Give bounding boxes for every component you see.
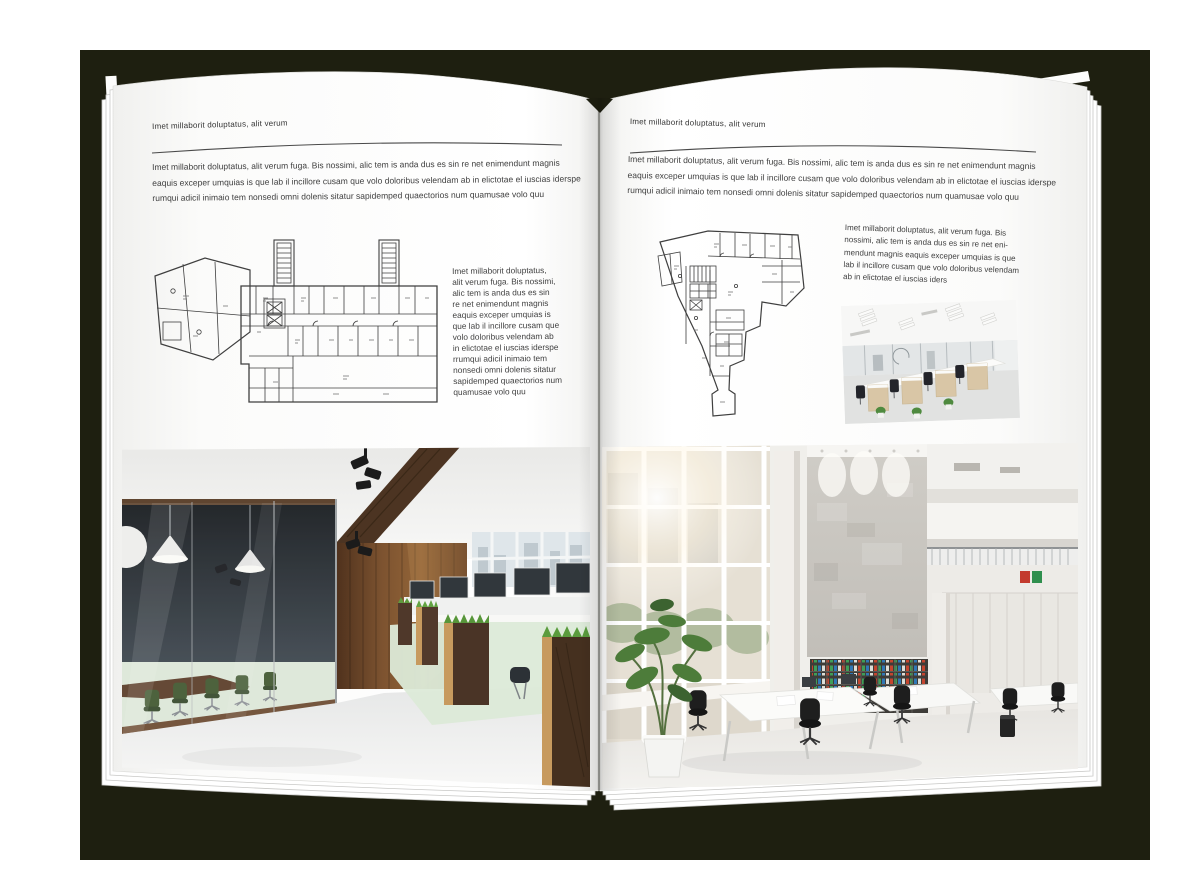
left-intro: Imet millaborit doluptatus, alit verum f… <box>152 156 581 207</box>
photo-open-space-small <box>841 300 1020 424</box>
photo-loft-office <box>122 447 590 787</box>
side-line: sapidemped quaectorios num <box>453 375 562 387</box>
right-intro: Imet millaborit doluptatus, alit verum f… <box>627 152 1056 206</box>
left-side-column: Imet millaborit doluptatus, alit verum f… <box>452 265 562 398</box>
right-side-text: Imet millaborit doluptatus, alit verum f… <box>843 222 1021 290</box>
left-header-rule <box>150 134 564 158</box>
side-line: quamusae volo quu <box>453 386 562 398</box>
floor-plan-right <box>650 226 810 418</box>
floor-plan-left <box>153 236 443 414</box>
magazine-spread-mockup: Imet millaborit doluptatus, alit verum I… <box>0 0 1200 891</box>
photo-atrium-office <box>602 443 1078 788</box>
